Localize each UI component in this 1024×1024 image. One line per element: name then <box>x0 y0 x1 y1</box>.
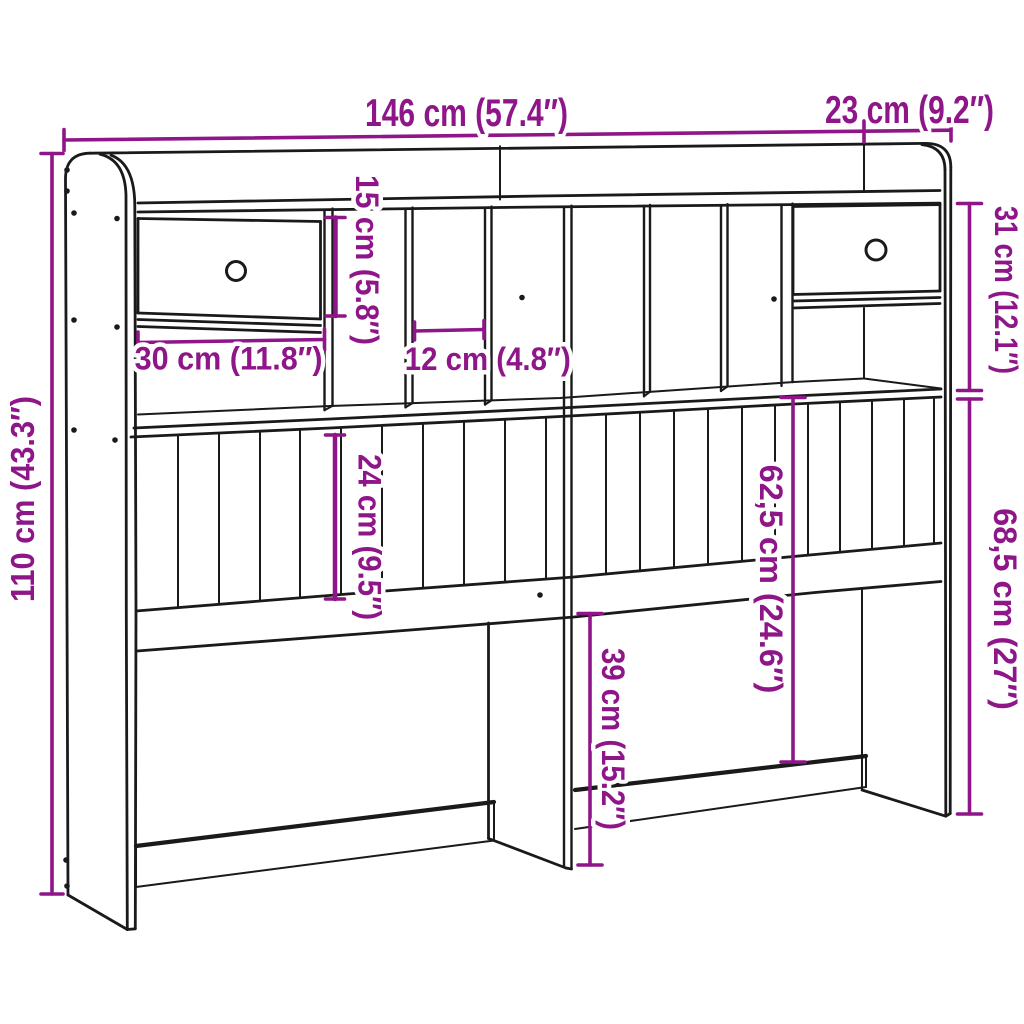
svg-text:23 cm (9.2″): 23 cm (9.2″) <box>825 89 994 132</box>
svg-text:146 cm (57.4″): 146 cm (57.4″) <box>365 92 568 135</box>
svg-text:39 cm (15.2″): 39 cm (15.2″) <box>595 648 631 830</box>
svg-text:15 cm (5.8″): 15 cm (5.8″) <box>349 175 385 345</box>
svg-text:110 cm (43.3″): 110 cm (43.3″) <box>4 396 41 602</box>
svg-text:30 cm (11.8″): 30 cm (11.8″) <box>135 341 323 377</box>
svg-text:62,5 cm (24.6″): 62,5 cm (24.6″) <box>753 465 789 694</box>
svg-text:68,5 cm (27″): 68,5 cm (27″) <box>987 508 1023 710</box>
svg-text:31 cm (12.1″): 31 cm (12.1″) <box>988 206 1024 374</box>
svg-text:12 cm (4.8″): 12 cm (4.8″) <box>405 341 571 377</box>
svg-text:24 cm (9.5″): 24 cm (9.5″) <box>352 454 388 620</box>
